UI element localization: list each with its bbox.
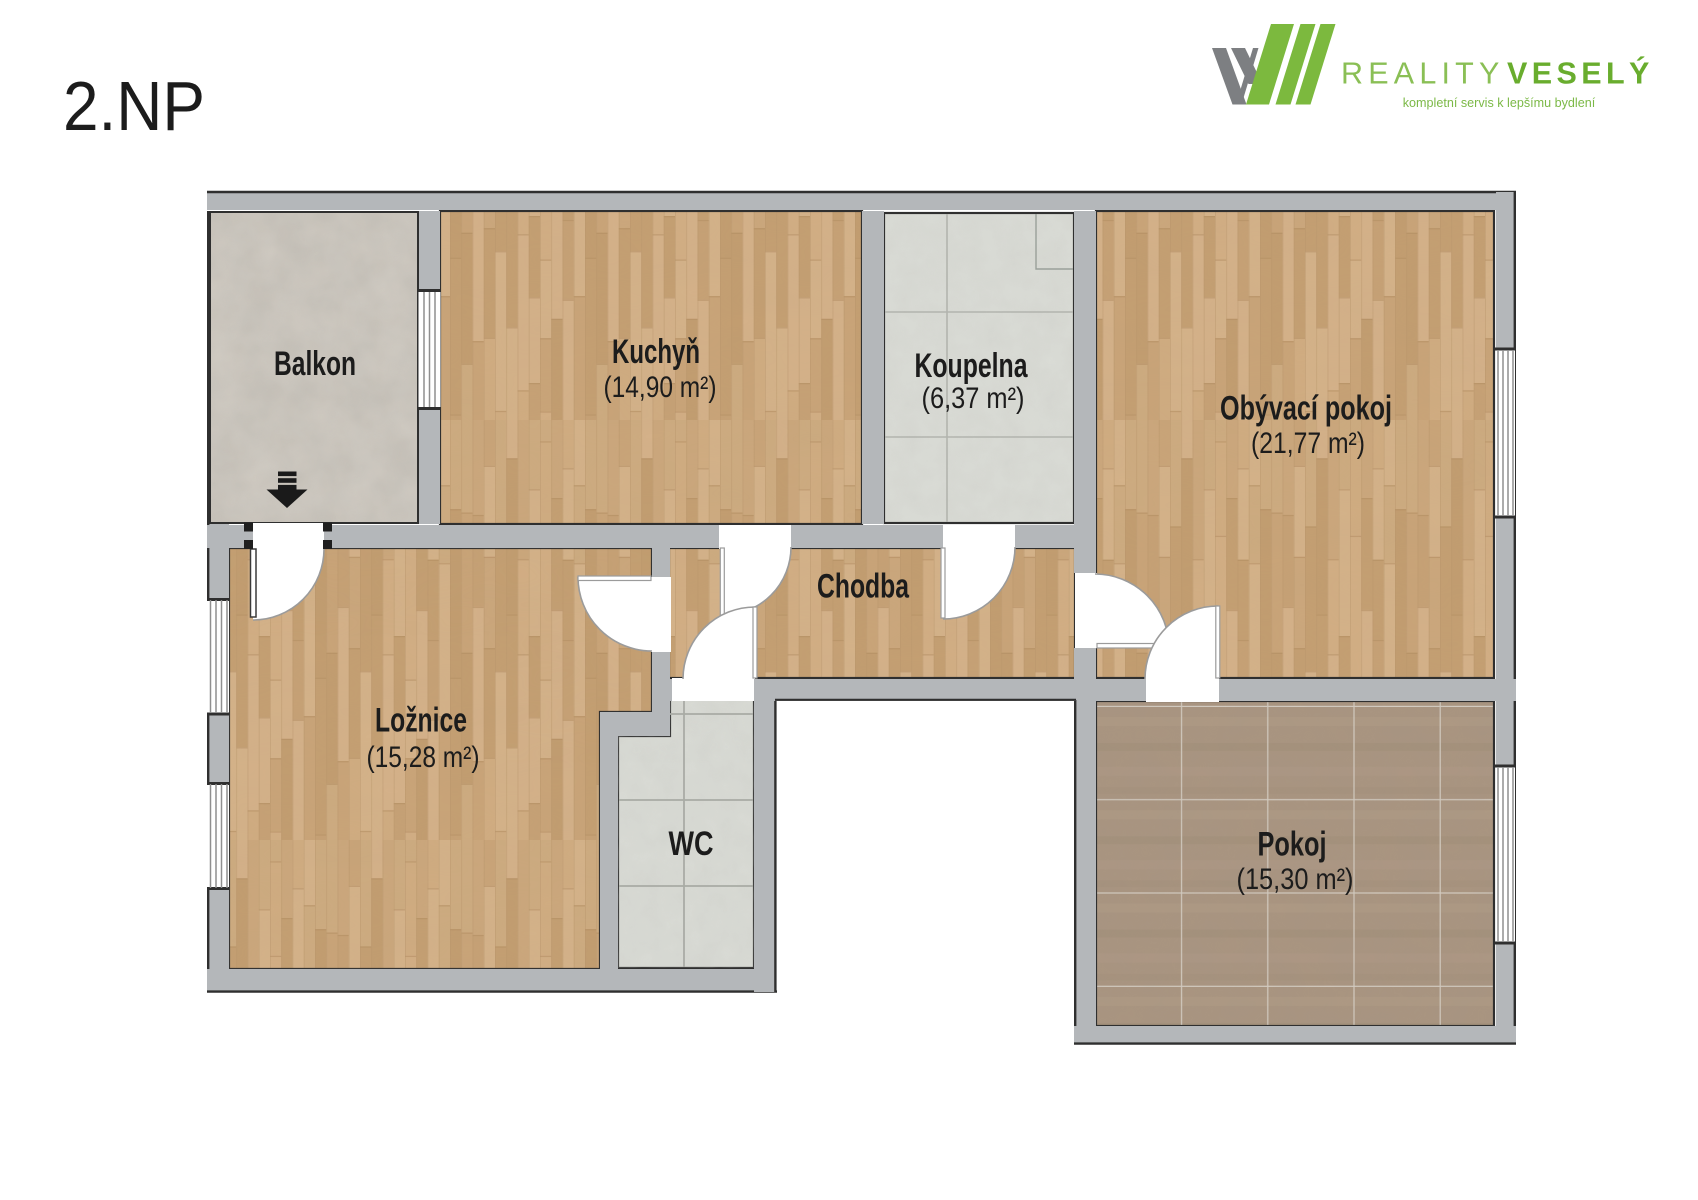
svg-text:Balkon: Balkon (274, 345, 356, 383)
svg-text:VESELÝ: VESELÝ (1507, 55, 1654, 91)
svg-text:REALITY: REALITY (1341, 57, 1505, 91)
svg-text:Obývací pokoj: Obývací pokoj (1220, 390, 1392, 428)
svg-text:(15,28 m²): (15,28 m²) (367, 741, 480, 774)
svg-text:Ložnice: Ložnice (375, 702, 467, 740)
svg-text:(14,90 m²): (14,90 m²) (604, 371, 717, 404)
svg-text:WC: WC (669, 825, 714, 863)
svg-text:(21,77 m²): (21,77 m²) (1251, 427, 1365, 460)
svg-text:Chodba: Chodba (817, 568, 910, 606)
svg-text:(15,30 m²): (15,30 m²) (1237, 863, 1354, 896)
svg-text:Pokoj: Pokoj (1258, 826, 1327, 864)
svg-text:Koupelna: Koupelna (915, 347, 1029, 385)
svg-text:(6,37 m²): (6,37 m²) (922, 382, 1025, 415)
svg-text:Kuchyň: Kuchyň (612, 333, 700, 371)
svg-text:2.NP: 2.NP (63, 67, 205, 145)
svg-text:kompletní servis k lepšímu byd: kompletní servis k lepšímu bydlení (1403, 96, 1596, 110)
